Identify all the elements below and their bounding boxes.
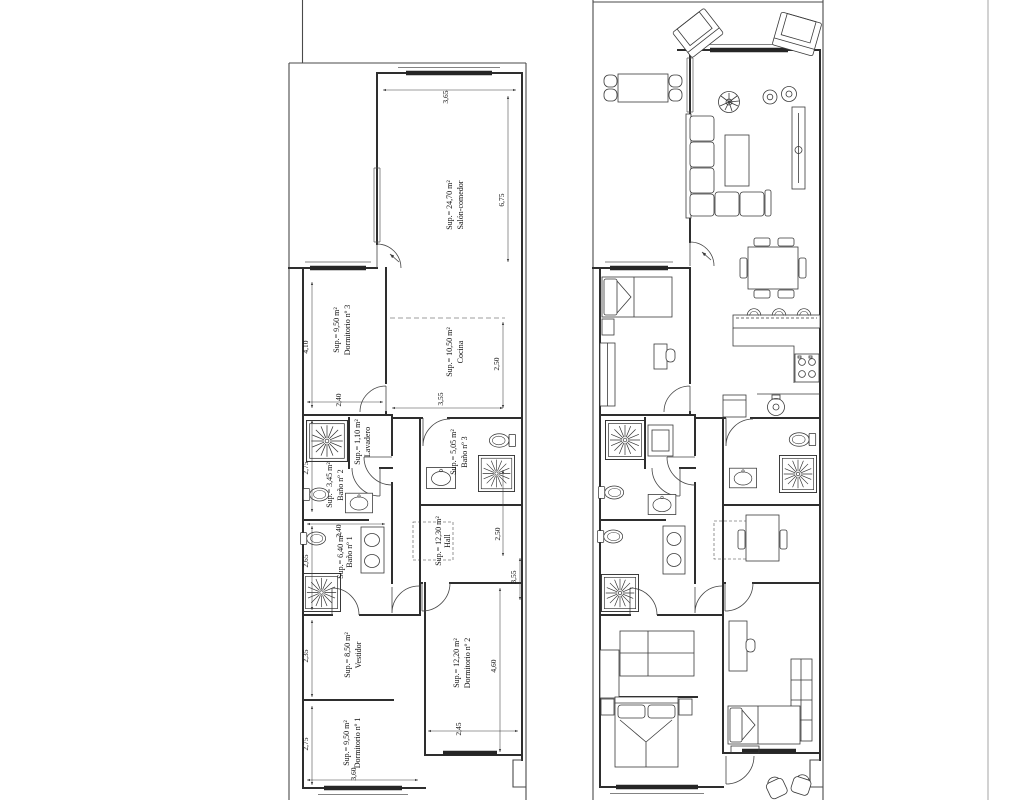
toilet-icon (300, 532, 325, 545)
washbasin-icon (648, 494, 676, 514)
room-label-dorm3: Dormitorio nº 3 (343, 305, 352, 355)
double-washbasin-icon (361, 527, 384, 573)
dim-salon-height: 6,75 (497, 193, 506, 206)
toilet-icon (489, 434, 515, 447)
nightstand (602, 319, 614, 335)
room-area-bano2: Sup.= 3,45 m² (325, 462, 334, 508)
room-area-dorm2: Sup.= 12,20 m² (452, 638, 461, 688)
shower-tray-icon (302, 573, 340, 611)
room-area-lavadero: Sup.= 1,10 m² (353, 419, 362, 465)
washing-machine-icon (648, 425, 673, 456)
desk (654, 344, 675, 369)
right-plan (593, 0, 988, 800)
tv-sideboard (792, 107, 805, 189)
room-area-bano1: Sup.= 6,40 m² (336, 533, 345, 579)
dim-bano1-height: 2,65 (301, 554, 310, 567)
room-area-bano3: Sup.= 5,05 m² (449, 429, 458, 475)
double-washbasin-icon (663, 526, 685, 574)
wardrobe (600, 343, 615, 406)
room-area-dorm1: Sup.= 9,50 m² (342, 720, 351, 766)
shower-tray-icon (307, 421, 348, 462)
bar-stool-icon (772, 309, 786, 316)
shower-tray-icon (478, 455, 514, 491)
dim-dorm3-width: 2,40 (334, 393, 343, 406)
single-bed (728, 706, 800, 744)
washbasin-icon (729, 468, 756, 488)
hifi-speakers-icon (763, 87, 797, 105)
kitchen-sink-icon (768, 395, 785, 416)
left-parcel-boundary (289, 0, 526, 800)
single-bed (602, 277, 672, 317)
floor-plan-sheet: 3,65 6,75 4,10 2,40 2,50 3,55 2,75 2,65 … (0, 0, 1024, 800)
toilet-icon (789, 433, 815, 447)
left-dimension-lines (307, 90, 520, 785)
floor-plan-canvas: 3,65 6,75 4,10 2,40 2,50 3,55 2,75 2,65 … (0, 0, 1024, 800)
room-label-salon: Salón-comedor (456, 180, 465, 229)
left-dimension-labels: 3,65 6,75 4,10 2,40 2,50 3,55 2,75 2,65 … (301, 90, 518, 780)
room-label-dorm1: Dormitorio nº 1 (353, 718, 362, 768)
room-label-vestidor: Vestidor (354, 641, 363, 668)
vestidor-wardrobe (600, 631, 694, 698)
desk (729, 621, 755, 671)
terrace-chair (764, 774, 789, 800)
cooktop-icon (795, 354, 819, 382)
room-label-bano2: Baño nº 2 (336, 469, 345, 500)
dim-cocina-width: 3,55 (436, 392, 445, 405)
room-area-cocina: Sup.= 10,50 m² (445, 327, 454, 377)
shower-tray-icon (601, 574, 638, 611)
left-plan: 3,65 6,75 4,10 2,40 2,50 3,55 2,75 2,65 … (289, 0, 526, 800)
room-area-vestidor: Sup.= 8,50 m² (343, 632, 352, 678)
room-label-cocina: Cocina (456, 340, 465, 363)
room-area-dorm3: Sup.= 9,50 m² (332, 307, 341, 353)
dim-hall-width: 3,55 (509, 570, 518, 583)
washbasin-icon (345, 493, 372, 513)
dim-hall-height: 2,50 (493, 527, 502, 540)
dim-bano2-height: 2,75 (301, 461, 310, 474)
right-parcel-boundary (593, 0, 988, 800)
dim-vestidor-height: 2,35 (301, 649, 310, 662)
entrance-arrow (702, 252, 711, 260)
room-label-bano3: Baño nº 3 (460, 436, 469, 467)
room-label-dorm2: Dormitorio nº 2 (463, 638, 472, 688)
dishwasher-icon (723, 395, 746, 417)
bar-stool-icon (747, 309, 761, 316)
left-walls (289, 73, 526, 788)
shower-tray-icon (606, 421, 645, 460)
dim-dorm2-height: 4,60 (489, 659, 498, 672)
toilet-icon (597, 530, 622, 543)
room-area-hall: Sup.= 12,30 m² (434, 516, 443, 566)
hall-table (738, 515, 787, 561)
double-bed (601, 697, 692, 767)
outdoor-dining-table (604, 74, 682, 102)
coffee-table (725, 135, 749, 186)
shower-tray-icon (779, 455, 816, 492)
room-label-hall: Hall (443, 533, 452, 548)
toilet-icon (598, 486, 623, 499)
dining-table (740, 238, 806, 298)
dim-salon-width: 3,65 (441, 90, 450, 103)
dim-cocina-height: 2,50 (492, 357, 501, 370)
room-area-salon: Sup.= 24,70 m² (445, 180, 454, 230)
dim-dorm2-width: 2,45 (454, 722, 463, 735)
bar-stool-icon (797, 309, 811, 316)
room-label-bano1: Baño nº 1 (345, 536, 354, 567)
breakfast-bar (733, 309, 820, 328)
dim-dorm3-height: 4,10 (301, 340, 310, 353)
dim-dorm1-height: 2,75 (301, 737, 310, 750)
room-label-lavadero: Lavadero (363, 427, 372, 457)
plant-icon (719, 92, 740, 113)
